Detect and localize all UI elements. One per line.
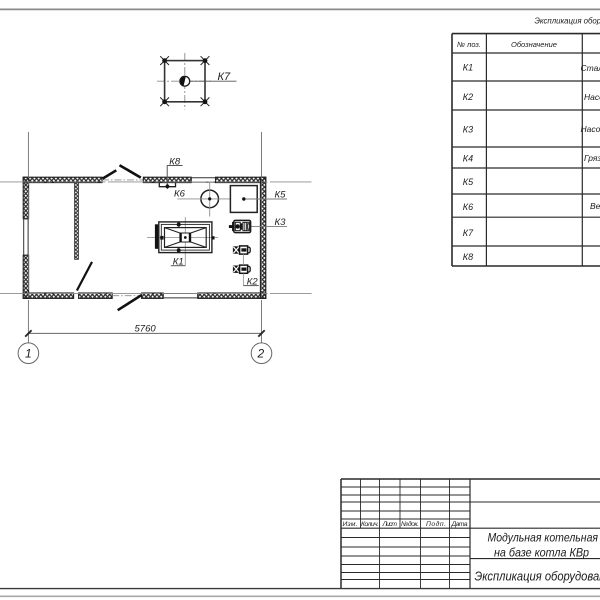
svg-text:Обозначение: Обозначение [511,40,557,49]
svg-text:Подп.: Подп. [426,520,446,528]
svg-text:Насос подпиточный: Насос подпиточный [581,124,600,134]
svg-text:Изм.: Изм. [343,521,358,528]
svg-text:К2: К2 [463,92,473,102]
svg-text:Лист: Лист [382,521,398,528]
svg-text:К2: К2 [247,276,259,287]
svg-text:К3: К3 [275,217,287,228]
svg-text:5760: 5760 [135,323,157,334]
svg-text:Вентилятор: Вентилятор [590,201,600,211]
svg-text:№док.: №док. [401,520,419,528]
svg-text:К7: К7 [463,228,474,238]
svg-text:Экспликация оборудования: Экспликация оборудования [475,569,600,584]
svg-text:на базе котла КВр: на базе котла КВр [494,546,589,560]
svg-text:К4: К4 [463,154,473,164]
svg-text:К3: К3 [463,124,473,134]
svg-text:К5: К5 [275,190,287,201]
svg-text:К8: К8 [169,156,181,167]
svg-text:К6: К6 [463,202,473,212]
svg-text:К1: К1 [173,257,184,268]
svg-text:К8: К8 [463,252,473,262]
svg-text:2: 2 [257,347,265,361]
svg-text:Стальной котел: Стальной котел [581,63,600,73]
svg-text:1: 1 [25,347,32,361]
svg-text:Модульная котельная: Модульная котельная [488,531,599,545]
svg-text:Колич.: Колич. [361,521,379,528]
svg-text:К7: К7 [218,71,231,83]
svg-text:№ поз.: № поз. [457,40,481,49]
svg-text:К6: К6 [174,189,186,200]
svg-text:К1: К1 [463,62,473,72]
svg-text:Грязевик: Грязевик [584,153,600,163]
svg-text:Дата: Дата [451,521,468,528]
svg-text:Экспликация оборудования: Экспликация оборудования [535,16,600,26]
svg-text:Насос сетевой: Насос сетевой [584,92,600,102]
svg-text:К5: К5 [463,177,474,187]
